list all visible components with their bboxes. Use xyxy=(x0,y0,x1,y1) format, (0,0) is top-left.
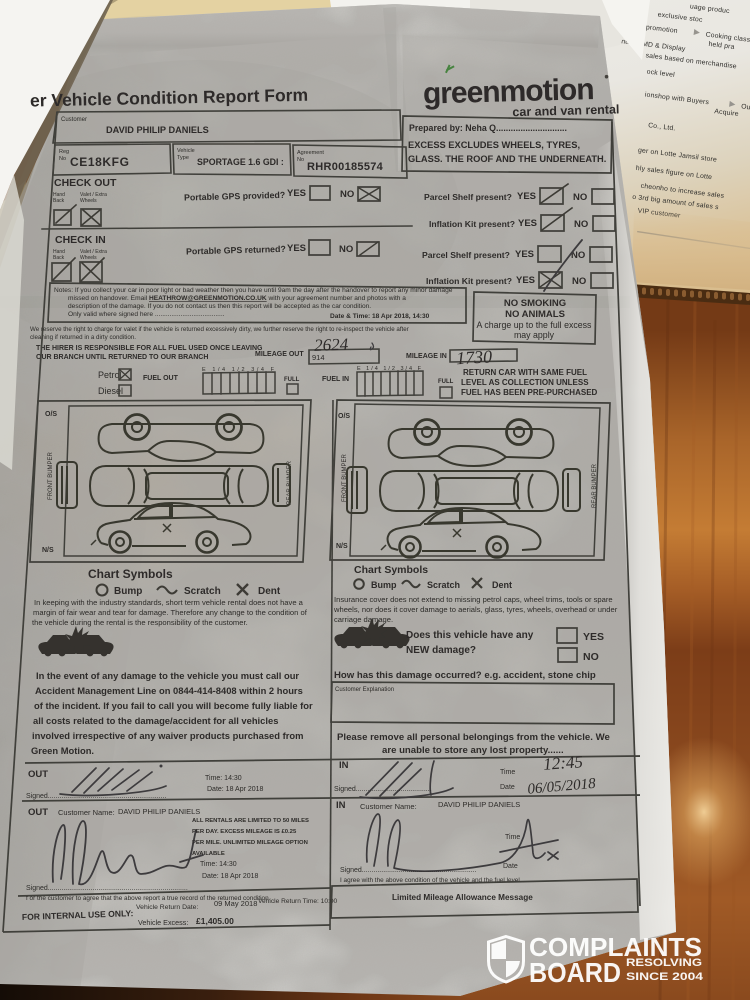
svg-text:Parcel Shelf present?: Parcel Shelf present? xyxy=(422,250,510,260)
svg-text:Type: Type xyxy=(177,155,189,161)
svg-text:Bump: Bump xyxy=(114,586,142,597)
svg-text:THE HIRER IS RESPONSIBLE FOR A: THE HIRER IS RESPONSIBLE FOR ALL FUEL US… xyxy=(36,345,263,352)
svg-text:carriage damage.: carriage damage. xyxy=(334,615,393,624)
svg-text:all costs related to the damag: all costs related to the damage/accident… xyxy=(33,715,278,726)
svg-text:Customer Explanation: Customer Explanation xyxy=(335,687,394,693)
svg-text:Only valid where signed here .: Only valid where signed here ...........… xyxy=(68,311,225,318)
svg-text:2624: 2624 xyxy=(314,335,349,355)
svg-text:AVAILABLE: AVAILABLE xyxy=(192,851,225,857)
svg-text:09 May 2018: 09 May 2018 xyxy=(214,899,257,908)
svg-text:Please remove all personal bel: Please remove all personal belongings fr… xyxy=(337,732,610,743)
svg-text:FUEL HAS BEEN PRE-PURCHASED: FUEL HAS BEEN PRE-PURCHASED xyxy=(461,388,598,397)
svg-text:NEW damage?: NEW damage? xyxy=(406,645,476,656)
svg-text:may apply: may apply xyxy=(514,330,555,340)
svg-text:Scratch: Scratch xyxy=(427,580,460,590)
svg-text:Time: Time xyxy=(505,834,520,841)
svg-text:Signed........................: Signed..................................… xyxy=(26,885,188,892)
svg-text:In keeping with the industry s: In keeping with the industry standards, … xyxy=(34,598,304,607)
svg-text:YES: YES xyxy=(515,249,534,260)
svg-text:DAVID PHILIP DANIELS: DAVID PHILIP DANIELS xyxy=(106,125,209,135)
svg-text:BOARD: BOARD xyxy=(529,957,621,988)
svg-text:Date & Time: 18 Apr 2018, 14:3: Date & Time: 18 Apr 2018, 14:30 xyxy=(330,313,430,320)
svg-text:Petrol: Petrol xyxy=(98,370,122,380)
svg-text:YES: YES xyxy=(287,243,306,254)
svg-text:ALL RENTALS ARE LIMITED TO 50: ALL RENTALS ARE LIMITED TO 50 MILES xyxy=(192,818,309,824)
svg-text:Time: 14:30: Time: 14:30 xyxy=(205,775,242,782)
svg-text:FRONT BUMPER: FRONT BUMPER xyxy=(48,451,54,500)
svg-text:Dent: Dent xyxy=(258,586,281,597)
svg-text:Vehicle Return Time: 10:00: Vehicle Return Time: 10:00 xyxy=(258,898,338,905)
svg-text:In the event of any damage to: In the event of any damage to the vehicl… xyxy=(36,670,299,681)
svg-text:CE18KFG: CE18KFG xyxy=(70,155,130,169)
svg-text:Date: Date xyxy=(503,863,518,870)
svg-text:Notes: If you collect your c: Notes: If you collect your car in poor l… xyxy=(54,287,453,294)
svg-text:O/S: O/S xyxy=(338,413,350,420)
svg-text:Bump: Bump xyxy=(371,580,397,590)
svg-text:are unable to store any lost p: are unable to store any lost property...… xyxy=(382,745,564,756)
svg-text:margin of fair wear and tear f: margin of fair wear and tear for damage.… xyxy=(33,608,308,617)
svg-text:OUR BRANCH UNTIL RETURNED TO O: OUR BRANCH UNTIL RETURNED TO OUR BRANCH xyxy=(36,354,208,361)
svg-text:YES: YES xyxy=(516,275,535,286)
svg-text:involved irrespective of any w: involved irrespective of any waiver prod… xyxy=(32,730,303,741)
svg-text:MILEAGE IN: MILEAGE IN xyxy=(406,353,447,360)
svg-text:Wheels: Wheels xyxy=(80,198,97,204)
svg-text:Chart Symbols: Chart Symbols xyxy=(88,567,173,581)
svg-text:FUEL IN: FUEL IN xyxy=(322,376,349,383)
svg-text:wheels, nor does it cover dama: wheels, nor does it cover damage to aeri… xyxy=(333,605,618,614)
svg-text:Vehicle Return Date:: Vehicle Return Date: xyxy=(136,904,198,911)
svg-text:missed on handover. Email HEA: missed on handover. Email HEATHROW@GREEN… xyxy=(68,295,406,302)
svg-text:DAVID PHILIP DANIELS: DAVID PHILIP DANIELS xyxy=(118,807,200,816)
svg-text:Date: 18 Apr 2018: Date: 18 Apr 2018 xyxy=(207,786,264,793)
svg-text:Inflation Kit present?: Inflation Kit present? xyxy=(429,219,515,229)
svg-text:Vehicle: Vehicle xyxy=(177,148,195,154)
svg-text:Vehicle Excess:: Vehicle Excess: xyxy=(138,918,188,927)
svg-text:LEVEL AS COLLECTION UNLESS: LEVEL AS COLLECTION UNLESS xyxy=(461,378,589,387)
svg-text:Signed........................: Signed..................................… xyxy=(334,786,432,793)
svg-text:12:45: 12:45 xyxy=(543,752,584,774)
svg-text:FULL: FULL xyxy=(284,377,300,383)
svg-text:No: No xyxy=(59,156,66,162)
svg-text:Green Motion.: Green Motion. xyxy=(31,745,94,756)
svg-text:Dent: Dent xyxy=(492,580,512,590)
svg-text:description of the damage. If: description of the damage. If you do not… xyxy=(68,303,371,310)
svg-text:Date: 18 Apr 2018: Date: 18 Apr 2018 xyxy=(202,873,259,880)
svg-text:Signed........................: Signed..................................… xyxy=(26,793,166,800)
svg-text:Inflation Kit present?: Inflation Kit present? xyxy=(426,276,512,286)
svg-text:Agreement: Agreement xyxy=(297,150,324,156)
svg-text:GLASS. THE ROOF AND THE UNDERN: GLASS. THE ROOF AND THE UNDERNEATH. xyxy=(408,154,606,164)
svg-text:DAVID PHILIP DANIELS: DAVID PHILIP DANIELS xyxy=(438,800,520,809)
svg-text:We reserve the right to charge: We reserve the right to charge for valet… xyxy=(30,326,409,333)
svg-text:Limited Mileage Allowance Mess: Limited Mileage Allowance Message xyxy=(392,893,533,902)
svg-text:No: No xyxy=(297,157,304,163)
svg-text:FULL: FULL xyxy=(438,379,454,385)
svg-text:Chart Symbols: Chart Symbols xyxy=(354,564,428,576)
svg-text:YES: YES xyxy=(583,631,604,643)
svg-text:£1,405.00: £1,405.00 xyxy=(196,916,234,926)
svg-text:CHECK OUT: CHECK OUT xyxy=(54,177,117,189)
svg-text:Time: 14:30: Time: 14:30 xyxy=(200,861,237,868)
svg-text:A charge up to the full excess: A charge up to the full excess xyxy=(477,320,593,330)
svg-text:Reg: Reg xyxy=(59,149,69,155)
svg-text:NO: NO xyxy=(340,189,354,200)
svg-text:Customer Name:: Customer Name: xyxy=(58,808,115,817)
svg-text:N/S: N/S xyxy=(336,543,348,550)
svg-text:Parcel Shelf present?: Parcel Shelf present? xyxy=(424,192,512,202)
svg-text:the vehicle during the rental: the vehicle during the rental is the res… xyxy=(32,618,248,627)
svg-text:Time: Time xyxy=(500,769,515,776)
svg-text:N/S: N/S xyxy=(42,547,54,554)
svg-text:FUEL OUT: FUEL OUT xyxy=(143,375,179,382)
svg-text:IN: IN xyxy=(339,760,349,771)
svg-text:Prepared by: Neha Q..........: Prepared by: Neha Q.....................… xyxy=(409,123,567,133)
svg-text:EXCESS EXCLUDES WHEELS, TYRES,: EXCESS EXCLUDES WHEELS, TYRES, xyxy=(408,140,580,150)
svg-text:Back: Back xyxy=(53,198,65,204)
svg-text:OUT: OUT xyxy=(28,769,48,780)
svg-text:How has this damage occurred?: How has this damage occurred? e.g. accid… xyxy=(334,670,596,681)
svg-text:CHECK IN: CHECK IN xyxy=(55,234,106,246)
svg-text:NO: NO xyxy=(583,651,599,663)
svg-text:Does this vehicle have any: Does this vehicle have any xyxy=(406,630,534,641)
svg-text:NO: NO xyxy=(573,192,587,203)
svg-text:O/S: O/S xyxy=(45,411,57,418)
svg-text:NO: NO xyxy=(339,244,353,255)
svg-text:Insurance cover does not exten: Insurance cover does not extend to missi… xyxy=(334,595,613,604)
svg-text:PER DAY. EXCESS MILEAGE IS £0.: PER DAY. EXCESS MILEAGE IS £0.25 xyxy=(192,829,297,835)
svg-text:SINCE 2004: SINCE 2004 xyxy=(626,971,704,983)
svg-text:YES: YES xyxy=(287,188,306,199)
svg-text:Customer: Customer xyxy=(61,117,87,123)
svg-text:RETURN CAR WITH SAME FUEL: RETURN CAR WITH SAME FUEL xyxy=(463,368,587,377)
svg-text:Signed........................: Signed..................................… xyxy=(340,867,477,874)
svg-text:Date: Date xyxy=(500,784,515,791)
svg-text:RESOLVING: RESOLVING xyxy=(626,957,702,969)
svg-text:RHR00185574: RHR00185574 xyxy=(307,161,384,173)
svg-text:YES: YES xyxy=(517,191,536,202)
svg-text:of the incident. If you fail t: of the incident. If you fail to call you… xyxy=(34,700,313,711)
svg-text:YES: YES xyxy=(518,218,537,229)
svg-text:NO SMOKING: NO SMOKING xyxy=(504,298,566,309)
svg-text:cleaning if returned in a dirt: cleaning if returned in a dirty conditio… xyxy=(30,334,136,341)
svg-text:Accident Management Line on 08: Accident Management Line on 0844-414-840… xyxy=(35,685,303,696)
svg-text:car and van rental: car and van rental xyxy=(512,102,619,119)
svg-text:Customer Name:: Customer Name: xyxy=(360,802,417,811)
svg-text:OUT: OUT xyxy=(28,807,48,818)
svg-text:PER MILE. UNLIMITED MILEAGE OP: PER MILE. UNLIMITED MILEAGE OPTION xyxy=(192,840,308,846)
svg-text:MILEAGE OUT: MILEAGE OUT xyxy=(255,351,304,358)
svg-text:IN: IN xyxy=(336,800,346,811)
svg-text:NO ANIMALS: NO ANIMALS xyxy=(505,309,565,320)
svg-text:Back: Back xyxy=(53,255,65,261)
svg-text:NO: NO xyxy=(574,219,588,230)
svg-text:SPORTAGE 1.6 GDI :: SPORTAGE 1.6 GDI : xyxy=(197,157,284,167)
svg-text:NO: NO xyxy=(572,276,586,287)
svg-text:REAR BUMPER: REAR BUMPER xyxy=(592,463,598,508)
svg-text:1730: 1730 xyxy=(456,346,493,368)
svg-text:Wheels: Wheels xyxy=(80,255,97,261)
svg-text:Scratch: Scratch xyxy=(184,586,221,597)
